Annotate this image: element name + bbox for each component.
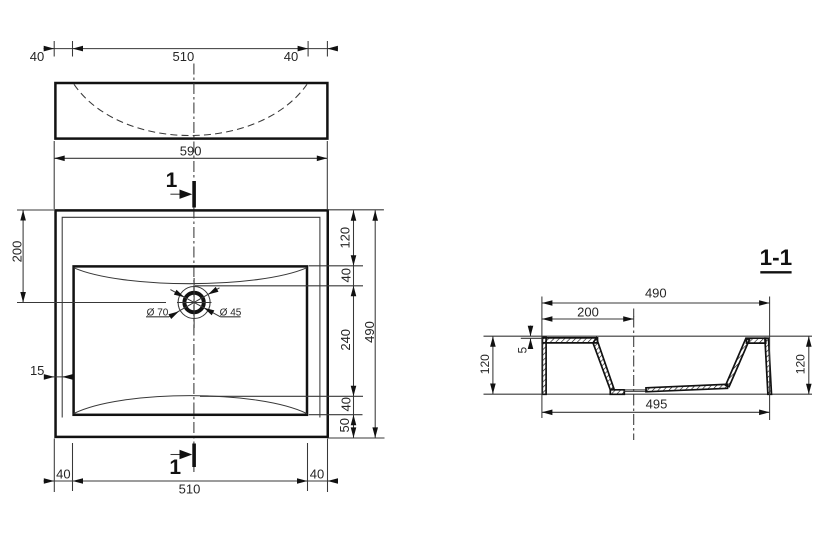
svg-text:120: 120 (338, 227, 353, 249)
svg-text:5: 5 (516, 347, 530, 354)
svg-text:40: 40 (339, 397, 354, 411)
svg-text:1-1: 1-1 (760, 245, 793, 270)
svg-text:490: 490 (645, 286, 667, 301)
svg-text:50: 50 (337, 418, 352, 432)
svg-text:40: 40 (284, 49, 298, 64)
svg-text:200: 200 (9, 241, 24, 263)
svg-text:40: 40 (339, 268, 354, 282)
svg-text:200: 200 (577, 305, 599, 320)
svg-text:510: 510 (179, 482, 201, 497)
svg-text:120: 120 (478, 354, 492, 374)
svg-text:590: 590 (180, 143, 202, 158)
svg-text:15: 15 (30, 363, 44, 378)
svg-text:Ø 70: Ø 70 (147, 307, 169, 318)
svg-text:40: 40 (30, 49, 44, 64)
svg-text:1: 1 (166, 169, 178, 192)
svg-text:Ø 45: Ø 45 (220, 307, 242, 318)
svg-text:240: 240 (338, 329, 353, 351)
svg-text:490: 490 (362, 321, 377, 343)
svg-text:510: 510 (173, 49, 195, 64)
svg-text:40: 40 (310, 466, 324, 481)
svg-text:495: 495 (646, 396, 668, 411)
svg-text:1: 1 (169, 456, 181, 479)
svg-text:40: 40 (56, 466, 70, 481)
svg-text:120: 120 (794, 354, 808, 374)
